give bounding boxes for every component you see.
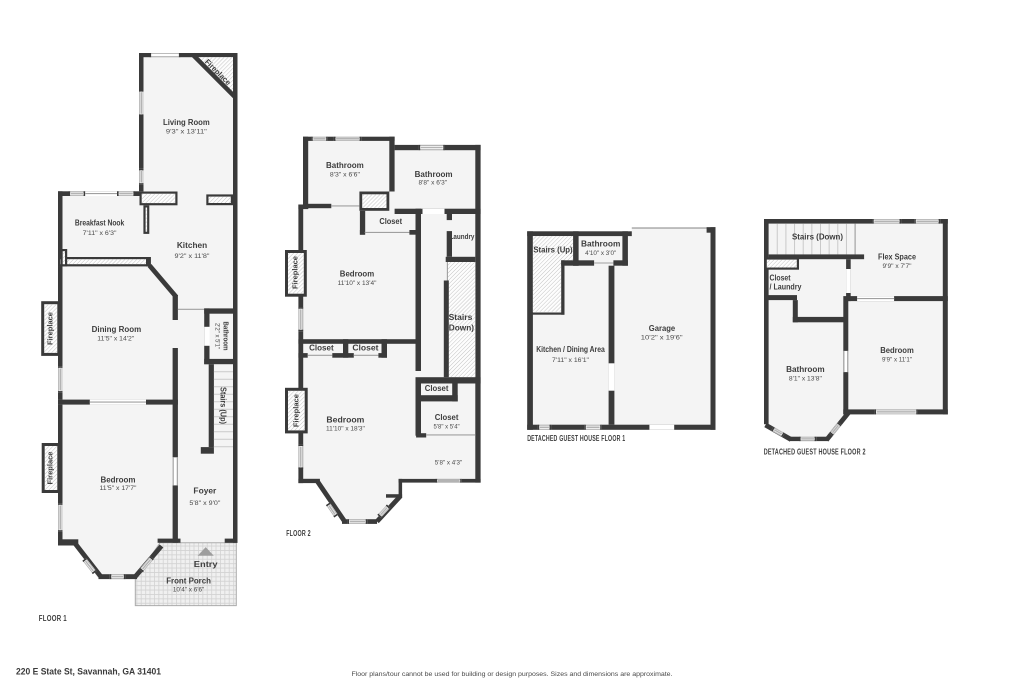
svg-text:Fireplace: Fireplace xyxy=(290,256,299,289)
svg-text:Bedroom: Bedroom xyxy=(880,346,914,355)
svg-text:Front Porch: Front Porch xyxy=(166,577,211,586)
svg-text:Entry: Entry xyxy=(194,560,218,569)
svg-text:Bathroom: Bathroom xyxy=(326,161,364,170)
svg-text:9'3" x 13'11": 9'3" x 13'11" xyxy=(166,129,208,136)
svg-text:Closet: Closet xyxy=(352,343,378,352)
svg-text:DETACHED GUEST HOUSE FLOOR 1: DETACHED GUEST HOUSE FLOOR 1 xyxy=(527,434,625,443)
svg-text:5'8" x 9'0": 5'8" x 9'0" xyxy=(189,500,221,507)
svg-text:Fireplace: Fireplace xyxy=(46,312,55,345)
svg-text:8'3" x 6'6": 8'3" x 6'6" xyxy=(330,171,361,178)
svg-text:(Down): (Down) xyxy=(446,323,474,332)
svg-text:Bedroom: Bedroom xyxy=(326,416,364,425)
svg-text:Stairs: Stairs xyxy=(449,313,473,322)
svg-text:Flex Space: Flex Space xyxy=(878,253,916,262)
svg-text:/ Laundry: / Laundry xyxy=(770,283,802,292)
svg-text:Laundry: Laundry xyxy=(450,232,475,241)
svg-text:Fireplace: Fireplace xyxy=(291,394,300,427)
svg-text:Bathroom: Bathroom xyxy=(415,170,453,179)
svg-text:11'10" x 18'3": 11'10" x 18'3" xyxy=(326,426,365,433)
svg-text:FLOOR 1: FLOOR 1 xyxy=(39,614,67,623)
svg-text:Kitchen / Dining Area: Kitchen / Dining Area xyxy=(536,345,605,354)
svg-text:Fireplace: Fireplace xyxy=(46,452,55,485)
svg-text:Living Room: Living Room xyxy=(163,118,210,127)
svg-text:10'2" x 19'6": 10'2" x 19'6" xyxy=(641,334,684,341)
svg-text:220 E State St, Savannah, GA 3: 220 E State St, Savannah, GA 31401 xyxy=(16,666,162,677)
svg-text:Garage: Garage xyxy=(649,324,676,333)
svg-text:11'5" x 17'7": 11'5" x 17'7" xyxy=(100,485,138,492)
svg-text:9'9" x 11'1": 9'9" x 11'1" xyxy=(882,356,913,363)
svg-text:2'2" x 5'1": 2'2" x 5'1" xyxy=(214,323,220,349)
svg-text:5'8" x 5'4": 5'8" x 5'4" xyxy=(434,424,461,431)
svg-text:8'8" x 6'3": 8'8" x 6'3" xyxy=(419,180,448,187)
svg-text:Bedroom: Bedroom xyxy=(100,475,135,484)
svg-text:9'9" x 7'7": 9'9" x 7'7" xyxy=(883,263,913,270)
svg-text:Bathroom: Bathroom xyxy=(581,239,620,248)
svg-text:Stairs (Down): Stairs (Down) xyxy=(792,233,843,242)
svg-text:Breakfast Nook: Breakfast Nook xyxy=(75,219,125,228)
svg-text:11'10" x 13'4": 11'10" x 13'4" xyxy=(338,280,377,287)
svg-text:FLOOR 2: FLOOR 2 xyxy=(286,529,311,538)
svg-text:10'4" x 6'6": 10'4" x 6'6" xyxy=(173,587,205,594)
svg-text:Closet: Closet xyxy=(435,413,459,422)
svg-text:Dining Room: Dining Room xyxy=(92,325,142,334)
svg-text:Bathroom: Bathroom xyxy=(786,365,825,374)
svg-text:Bathroom: Bathroom xyxy=(222,322,231,351)
svg-text:5'8" x 4'3": 5'8" x 4'3" xyxy=(435,459,463,466)
svg-text:4'10" x 3'0": 4'10" x 3'0" xyxy=(585,250,617,257)
svg-text:7'11" x 16'1": 7'11" x 16'1" xyxy=(552,357,590,364)
svg-text:9'2" x 11'8": 9'2" x 11'8" xyxy=(175,253,211,260)
svg-text:Closet: Closet xyxy=(309,343,334,352)
svg-text:Floor plans/tour cannot be use: Floor plans/tour cannot be used for buil… xyxy=(352,671,673,678)
svg-text:11'5" x 14'2": 11'5" x 14'2" xyxy=(97,336,135,343)
svg-text:7'11" x 6'3": 7'11" x 6'3" xyxy=(83,230,117,237)
svg-text:DETACHED GUEST HOUSE FLOOR 2: DETACHED GUEST HOUSE FLOOR 2 xyxy=(764,447,866,456)
svg-text:Closet: Closet xyxy=(379,217,402,226)
svg-text:Foyer: Foyer xyxy=(193,487,216,496)
svg-text:Closet: Closet xyxy=(770,273,791,282)
svg-text:8'1" x 13'8": 8'1" x 13'8" xyxy=(789,375,823,382)
svg-text:Stairs (Up): Stairs (Up) xyxy=(533,246,573,255)
svg-text:Closet: Closet xyxy=(425,384,449,393)
svg-text:Stairs (Up): Stairs (Up) xyxy=(219,387,228,424)
svg-text:Kitchen: Kitchen xyxy=(177,241,207,250)
svg-text:Bedroom: Bedroom xyxy=(340,269,374,278)
